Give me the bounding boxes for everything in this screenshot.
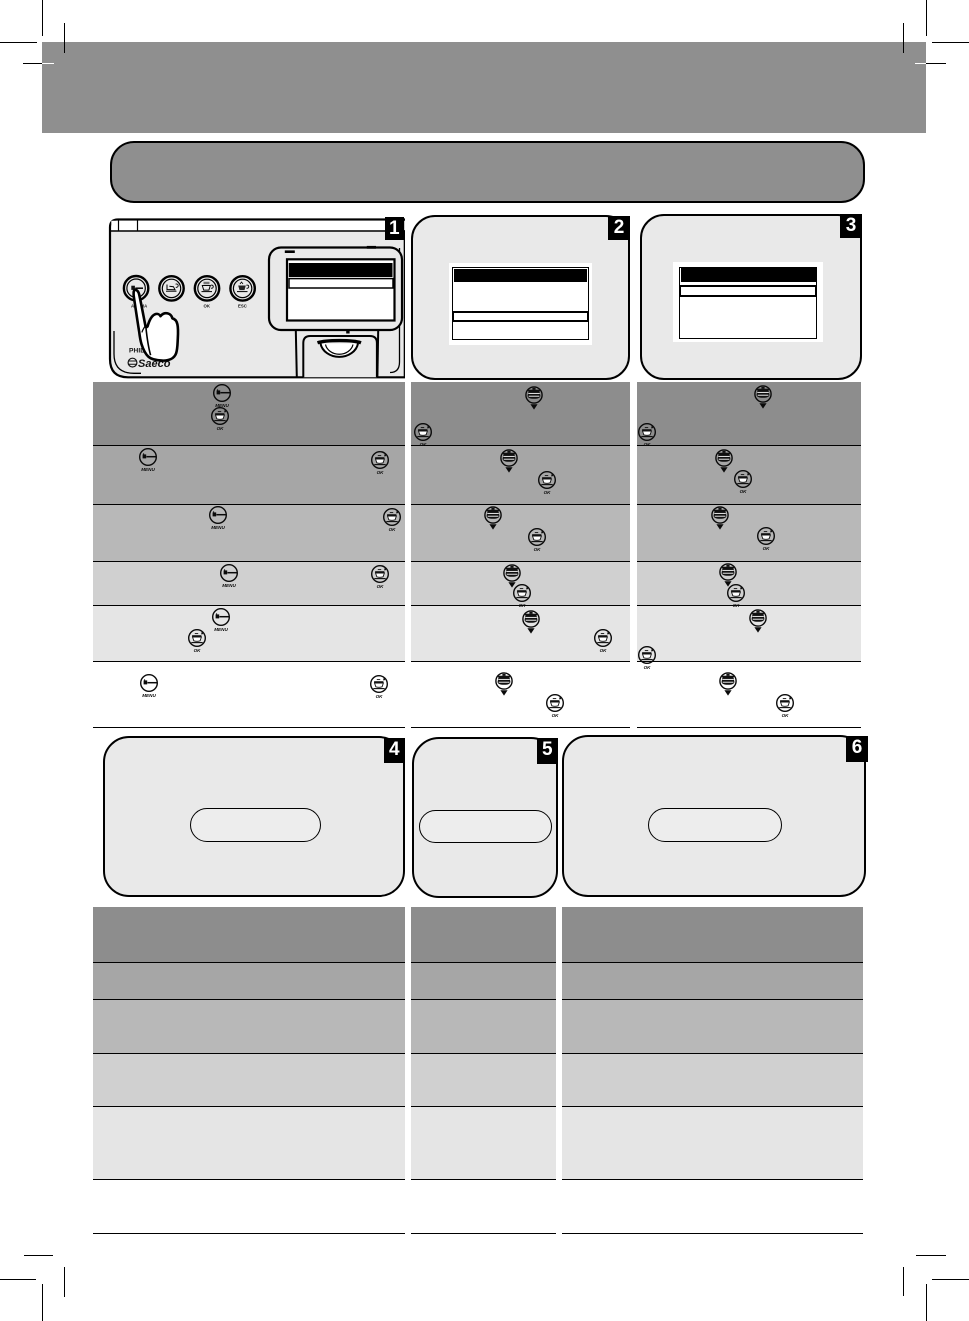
svg-text:ESC: ESC (238, 304, 247, 309)
svg-text:OK: OK (204, 304, 211, 309)
